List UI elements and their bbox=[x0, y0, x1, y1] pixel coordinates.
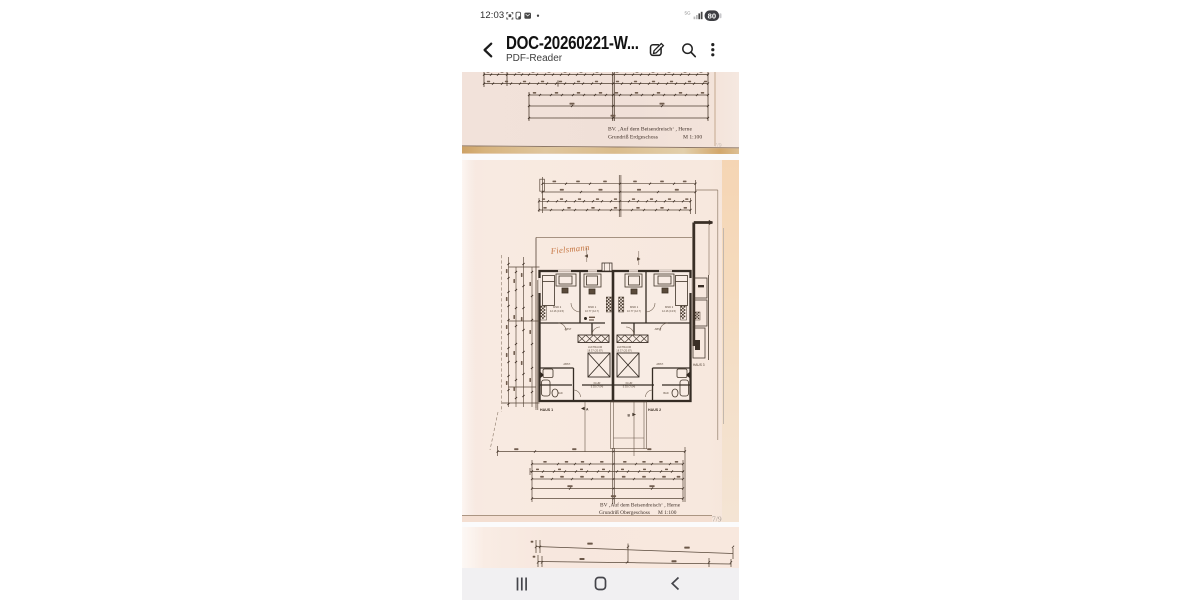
svg-text:5.35 (7.04): 5.35 (7.04) bbox=[623, 384, 636, 388]
svg-text:HAUS 3: HAUS 3 bbox=[693, 363, 705, 367]
svg-text:B: B bbox=[628, 414, 631, 418]
svg-text:BV. ‚Auf dem Beisendreisch‘ ,: BV. ‚Auf dem Beisendreisch‘ , Herne bbox=[608, 126, 692, 133]
svg-text:FLUR: FLUR bbox=[626, 381, 633, 385]
svg-text:LUFTRAUM: LUFTRAUM bbox=[617, 345, 631, 349]
svg-text:HAUS 1: HAUS 1 bbox=[540, 408, 553, 412]
svg-text:HAUS 2: HAUS 2 bbox=[648, 408, 661, 412]
svg-text:KIND 1: KIND 1 bbox=[630, 305, 639, 309]
svg-text:BAD: BAD bbox=[663, 391, 668, 395]
svg-text:ABST: ABST bbox=[565, 327, 572, 331]
svg-text:5.35 (7.04): 5.35 (7.04) bbox=[591, 384, 604, 388]
svg-text:10.77 (12.7): 10.77 (12.7) bbox=[585, 309, 599, 313]
svg-text:LUFTRAUM: LUFTRAUM bbox=[588, 345, 602, 349]
svg-text:Grundriß Obergeschoss: Grundriß Obergeschoss bbox=[599, 509, 650, 516]
svg-text:18.37 (20.87): 18.37 (20.87) bbox=[587, 348, 603, 352]
svg-text:ABST.: ABST. bbox=[656, 362, 663, 366]
svg-text:BAD: BAD bbox=[557, 391, 562, 395]
svg-text:FLUR: FLUR bbox=[594, 381, 601, 385]
svg-text:18.37 (20.87): 18.37 (20.87) bbox=[616, 348, 632, 352]
svg-text:12.16 (13.5): 12.16 (13.5) bbox=[662, 309, 676, 313]
svg-text:ABST: ABST bbox=[655, 327, 662, 331]
svg-text:Fielsmann: Fielsmann bbox=[549, 242, 590, 256]
svg-text:KIND 1: KIND 1 bbox=[588, 305, 597, 309]
svg-text:M 1:100: M 1:100 bbox=[658, 510, 677, 516]
svg-text:KIND 2: KIND 2 bbox=[665, 305, 674, 309]
svg-text:KIND 2: KIND 2 bbox=[553, 305, 562, 309]
svg-text:ABST.: ABST. bbox=[563, 362, 570, 366]
svg-text:7/9: 7/9 bbox=[712, 515, 722, 523]
svg-text:10.77 (12.7): 10.77 (12.7) bbox=[627, 309, 641, 313]
svg-text:12.16 (13.5): 12.16 (13.5) bbox=[550, 309, 564, 313]
svg-text:A: A bbox=[586, 408, 589, 412]
svg-text:BV ‚Auf dem Beisendreisch‘ ,: BV ‚Auf dem Beisendreisch‘ , Herne bbox=[600, 502, 681, 509]
